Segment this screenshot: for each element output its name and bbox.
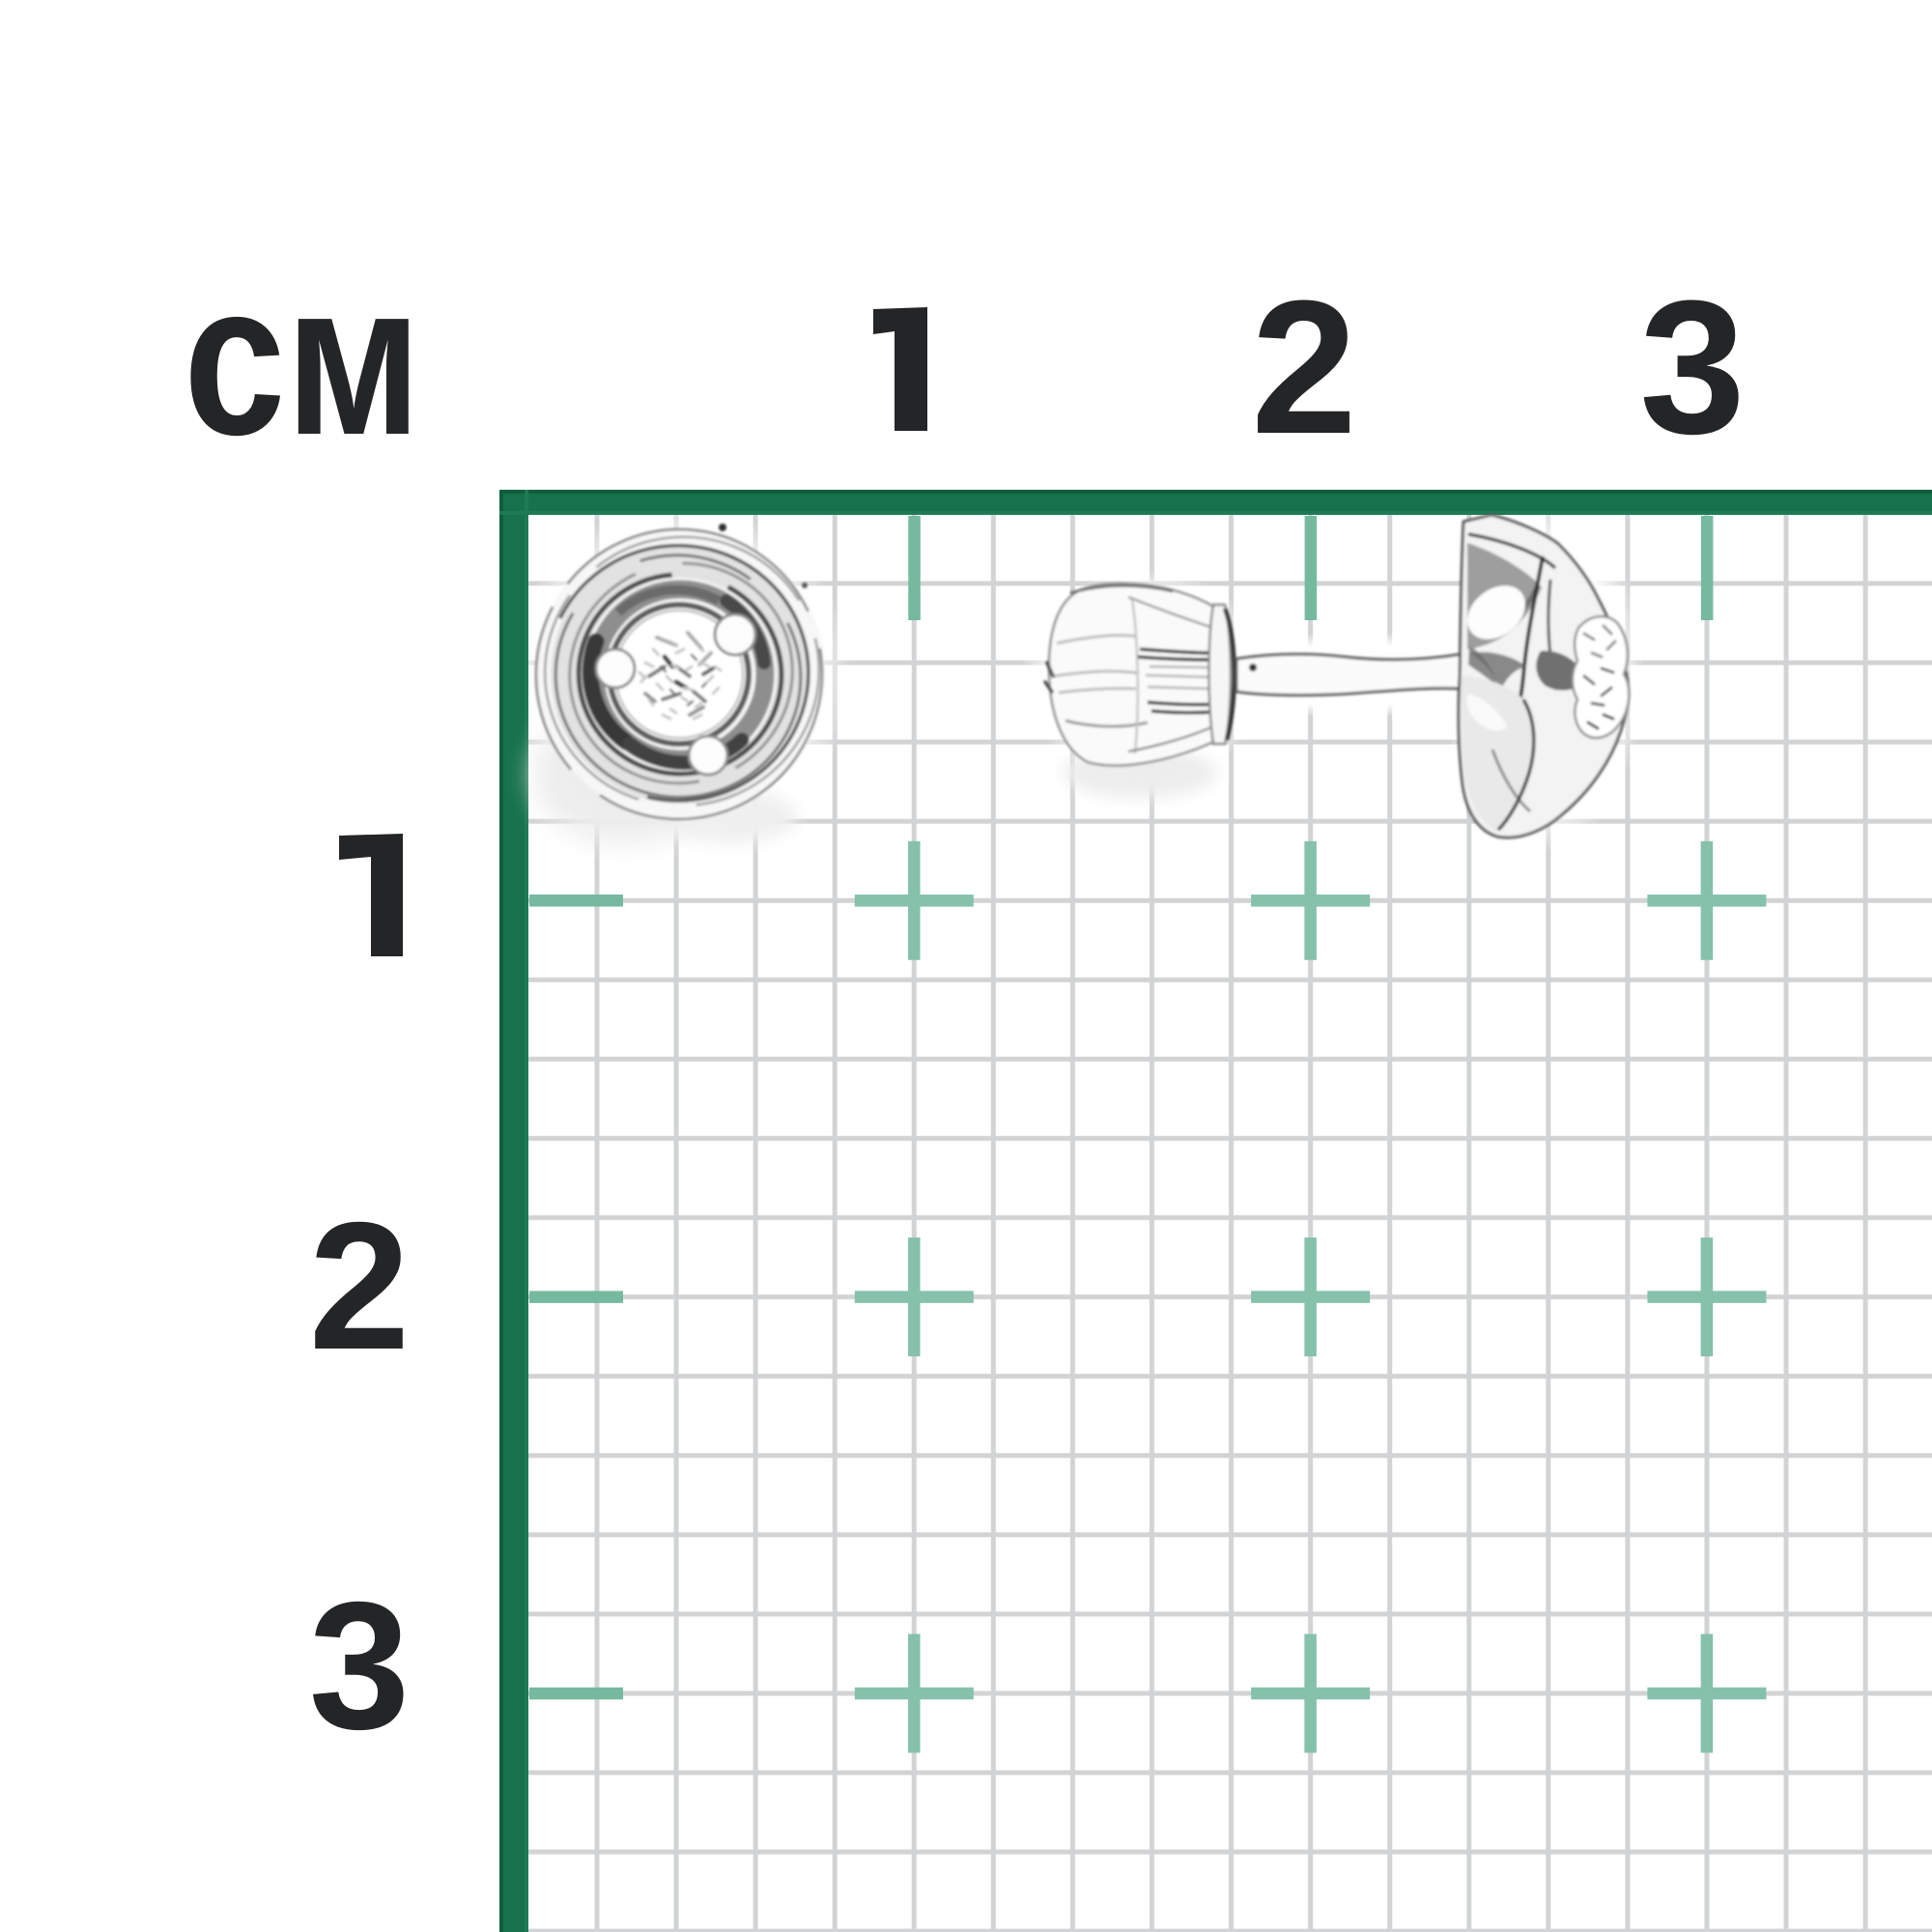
svg-text:3: 3 (1639, 261, 1746, 473)
svg-text:см: см (184, 237, 421, 480)
svg-text:3: 3 (309, 1564, 411, 1767)
svg-text:2: 2 (309, 1184, 411, 1387)
svg-text:2: 2 (1251, 261, 1357, 473)
